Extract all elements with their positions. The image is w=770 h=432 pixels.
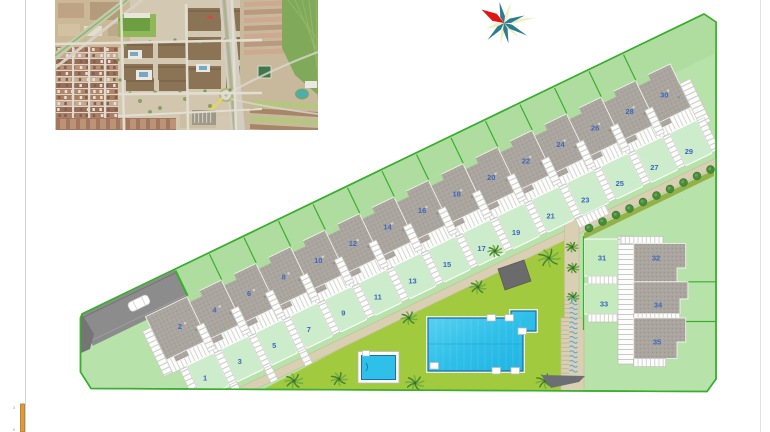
svg-text:0: 0	[13, 427, 16, 432]
svg-text:20: 20	[487, 173, 495, 182]
svg-text:3: 3	[238, 357, 242, 366]
svg-text:14: 14	[383, 223, 392, 232]
svg-text:5: 5	[272, 341, 276, 350]
svg-text:9: 9	[341, 309, 345, 318]
svg-text:6: 6	[247, 289, 251, 298]
svg-text:17: 17	[477, 244, 485, 253]
svg-text:35: 35	[653, 338, 661, 347]
svg-text:12: 12	[349, 239, 357, 248]
svg-text:23: 23	[581, 195, 589, 204]
svg-text:22: 22	[522, 157, 530, 166]
svg-text:10: 10	[314, 256, 322, 265]
svg-text:15: 15	[443, 260, 451, 269]
svg-text:19: 19	[512, 228, 520, 237]
svg-text:27: 27	[650, 163, 658, 172]
svg-text:29: 29	[685, 147, 693, 156]
svg-text:2: 2	[178, 322, 182, 331]
svg-text:1: 1	[203, 373, 207, 382]
svg-text:26: 26	[591, 123, 599, 132]
svg-text:31: 31	[598, 254, 606, 263]
svg-text:13: 13	[408, 276, 416, 285]
svg-text:3: 3	[13, 405, 16, 410]
svg-text:16: 16	[418, 206, 426, 215]
svg-text:8: 8	[282, 272, 286, 281]
svg-text:11: 11	[374, 293, 382, 302]
svg-text:18: 18	[453, 190, 461, 199]
svg-text:33: 33	[600, 300, 608, 309]
svg-text:7: 7	[307, 325, 311, 334]
svg-text:28: 28	[626, 107, 634, 116]
svg-text:32: 32	[652, 254, 660, 263]
svg-text:30: 30	[660, 90, 668, 99]
svg-text:24: 24	[556, 140, 565, 149]
svg-text:34: 34	[654, 301, 663, 310]
svg-text:21: 21	[547, 212, 555, 221]
svg-text:25: 25	[616, 179, 624, 188]
